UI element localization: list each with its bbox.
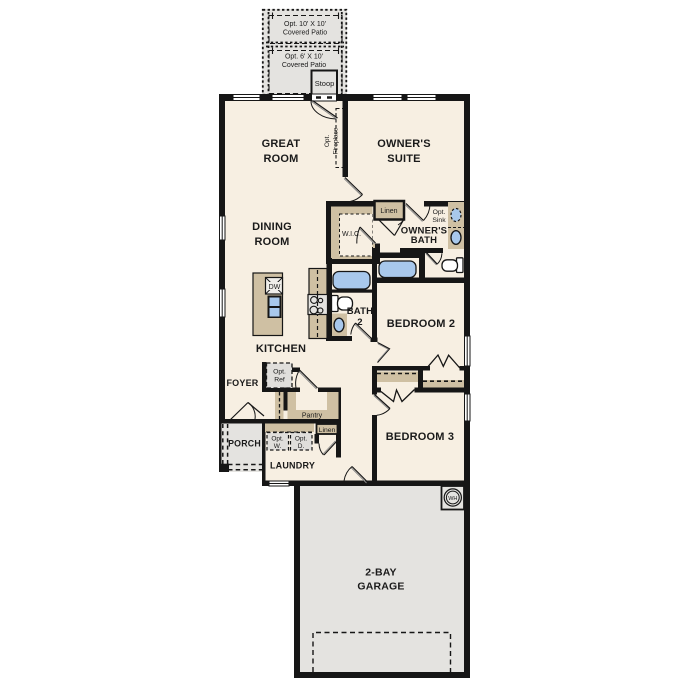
svg-text:Linen: Linen [380, 208, 397, 215]
svg-text:2: 2 [357, 317, 362, 328]
svg-text:Opt.: Opt. [324, 135, 331, 147]
svg-text:Opt.: Opt. [271, 436, 283, 443]
svg-text:Opt.: Opt. [433, 209, 446, 216]
svg-text:DINING: DINING [252, 221, 292, 233]
svg-text:OWNER'S: OWNER'S [377, 138, 431, 150]
svg-text:Stoop: Stoop [315, 79, 335, 88]
svg-text:W.: W. [274, 443, 282, 450]
svg-text:Linen: Linen [319, 427, 336, 434]
svg-text:Ref: Ref [274, 377, 285, 384]
svg-text:ROOM: ROOM [254, 236, 289, 248]
svg-text:WH: WH [448, 496, 457, 502]
svg-text:ROOM: ROOM [263, 153, 298, 165]
svg-text:LAUNDRY: LAUNDRY [270, 461, 315, 471]
svg-text:SUITE: SUITE [387, 153, 420, 165]
svg-text:PORCH: PORCH [228, 439, 261, 449]
svg-text:Opt. 10' X 10': Opt. 10' X 10' [284, 21, 326, 28]
svg-text:2-BAY: 2-BAY [365, 567, 397, 579]
svg-text:DW: DW [269, 284, 281, 291]
svg-text:GREAT: GREAT [262, 138, 301, 150]
svg-text:BATH: BATH [411, 235, 437, 246]
svg-text:Opt.: Opt. [295, 436, 307, 443]
svg-text:BATH: BATH [347, 306, 373, 317]
svg-text:BEDROOM 2: BEDROOM 2 [387, 318, 455, 330]
svg-text:GARAGE: GARAGE [357, 581, 404, 593]
svg-text:Opt.: Opt. [273, 369, 286, 376]
svg-text:Sink: Sink [432, 217, 446, 224]
svg-text:Fireplace: Fireplace [333, 127, 340, 154]
svg-text:Covered Patio: Covered Patio [282, 62, 326, 69]
svg-text:KITCHEN: KITCHEN [256, 343, 306, 355]
svg-text:Covered Patio: Covered Patio [283, 30, 327, 37]
svg-text:FOYER: FOYER [226, 378, 258, 388]
svg-text:Pantry: Pantry [302, 413, 323, 420]
svg-text:BEDROOM 3: BEDROOM 3 [386, 431, 454, 443]
svg-text:D.: D. [298, 443, 305, 450]
svg-text:Opt. 6' X 10': Opt. 6' X 10' [285, 54, 323, 61]
